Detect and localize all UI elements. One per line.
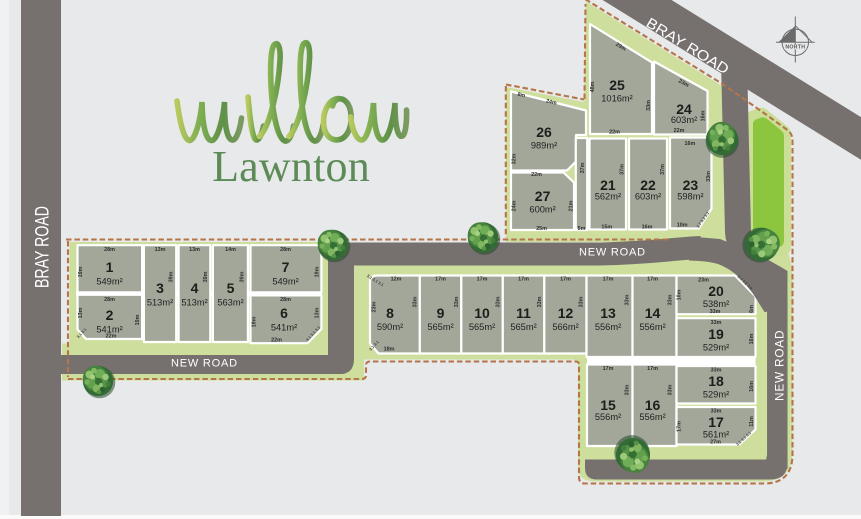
svg-text:48m: 48m bbox=[590, 81, 596, 92]
svg-text:18: 18 bbox=[708, 373, 724, 389]
svg-text:15: 15 bbox=[600, 397, 616, 413]
svg-text:13m: 13m bbox=[189, 247, 200, 253]
svg-text:590m²: 590m² bbox=[377, 322, 403, 332]
svg-text:549m²: 549m² bbox=[96, 277, 122, 287]
svg-text:BRAY ROAD: BRAY ROAD bbox=[33, 206, 54, 288]
svg-text:14m: 14m bbox=[225, 247, 236, 253]
svg-text:13m: 13m bbox=[78, 307, 84, 318]
svg-text:39m: 39m bbox=[203, 271, 209, 282]
svg-text:12: 12 bbox=[558, 305, 574, 321]
svg-text:32m: 32m bbox=[512, 153, 518, 164]
svg-text:556m²: 556m² bbox=[595, 412, 621, 422]
svg-text:11: 11 bbox=[516, 305, 531, 321]
svg-text:33m: 33m bbox=[668, 384, 674, 395]
svg-text:19: 19 bbox=[708, 326, 724, 342]
svg-text:33m: 33m bbox=[710, 309, 721, 315]
svg-text:603m²: 603m² bbox=[635, 192, 661, 202]
svg-text:27m: 27m bbox=[710, 440, 721, 446]
svg-text:17m: 17m bbox=[603, 366, 614, 372]
svg-text:11m: 11m bbox=[749, 416, 755, 427]
svg-text:Lawnton: Lawnton bbox=[212, 142, 370, 191]
svg-text:23m: 23m bbox=[698, 278, 709, 284]
svg-text:33m: 33m bbox=[711, 368, 722, 374]
svg-text:556m²: 556m² bbox=[595, 322, 621, 332]
svg-text:28m: 28m bbox=[280, 247, 291, 253]
svg-text:26: 26 bbox=[536, 124, 552, 140]
svg-text:33m: 33m bbox=[706, 171, 712, 182]
svg-text:37m: 37m bbox=[620, 164, 626, 175]
svg-text:3: 3 bbox=[156, 280, 164, 296]
svg-text:549m²: 549m² bbox=[272, 277, 298, 287]
svg-text:13: 13 bbox=[600, 305, 616, 321]
svg-text:19m: 19m bbox=[252, 316, 258, 327]
svg-text:19m: 19m bbox=[315, 266, 321, 277]
svg-text:2: 2 bbox=[106, 307, 114, 323]
svg-text:17m: 17m bbox=[677, 421, 683, 432]
svg-text:556m²: 556m² bbox=[639, 322, 665, 332]
svg-text:17m: 17m bbox=[435, 277, 446, 283]
svg-text:15m: 15m bbox=[601, 225, 612, 231]
svg-text:22m: 22m bbox=[531, 172, 542, 178]
svg-text:7: 7 bbox=[282, 259, 290, 275]
svg-text:NEW ROAD: NEW ROAD bbox=[579, 247, 646, 259]
svg-text:33m: 33m bbox=[668, 294, 674, 305]
svg-text:561m²: 561m² bbox=[703, 430, 729, 440]
svg-text:16: 16 bbox=[645, 397, 661, 413]
svg-text:22m: 22m bbox=[271, 338, 282, 344]
svg-text:39m: 39m bbox=[169, 271, 175, 282]
svg-text:39m: 39m bbox=[240, 271, 246, 282]
svg-text:603m²: 603m² bbox=[671, 115, 697, 125]
svg-text:24m: 24m bbox=[512, 200, 518, 211]
svg-text:529m²: 529m² bbox=[703, 343, 729, 353]
svg-text:33m: 33m bbox=[625, 294, 631, 305]
svg-text:17m: 17m bbox=[647, 366, 658, 372]
svg-text:NEW ROAD: NEW ROAD bbox=[773, 330, 787, 401]
svg-text:600m²: 600m² bbox=[529, 205, 555, 215]
svg-text:565m²: 565m² bbox=[510, 322, 536, 332]
svg-text:33m: 33m bbox=[537, 296, 543, 307]
svg-text:18m: 18m bbox=[384, 347, 395, 353]
svg-text:33m: 33m bbox=[625, 384, 631, 395]
svg-text:17m: 17m bbox=[647, 277, 658, 283]
svg-text:513m²: 513m² bbox=[181, 298, 207, 308]
svg-text:565m²: 565m² bbox=[427, 322, 453, 332]
svg-text:6: 6 bbox=[280, 305, 288, 321]
svg-text:538m²: 538m² bbox=[703, 299, 729, 309]
svg-text:563m²: 563m² bbox=[217, 298, 243, 308]
svg-text:16m: 16m bbox=[749, 381, 755, 392]
svg-text:17: 17 bbox=[708, 414, 724, 430]
svg-text:28m: 28m bbox=[280, 297, 291, 303]
svg-text:25: 25 bbox=[609, 77, 625, 93]
svg-text:37m: 37m bbox=[580, 162, 586, 173]
svg-text:28m: 28m bbox=[104, 247, 115, 253]
svg-text:14: 14 bbox=[645, 305, 661, 321]
svg-text:566m²: 566m² bbox=[552, 322, 578, 332]
svg-text:20: 20 bbox=[708, 283, 724, 299]
svg-text:22m: 22m bbox=[106, 334, 117, 340]
svg-text:1016m²: 1016m² bbox=[601, 94, 633, 104]
svg-text:17m: 17m bbox=[560, 277, 571, 283]
svg-text:13m: 13m bbox=[315, 307, 321, 318]
svg-text:23m: 23m bbox=[372, 301, 378, 312]
svg-text:19m: 19m bbox=[78, 266, 84, 277]
svg-text:19m: 19m bbox=[135, 314, 141, 325]
svg-text:33m: 33m bbox=[454, 296, 460, 307]
svg-text:16m: 16m bbox=[642, 225, 653, 231]
svg-text:17m: 17m bbox=[518, 277, 529, 283]
svg-text:4: 4 bbox=[191, 280, 199, 296]
svg-text:529m²: 529m² bbox=[703, 390, 729, 400]
svg-text:28m: 28m bbox=[104, 297, 115, 303]
svg-text:16m: 16m bbox=[685, 141, 696, 147]
svg-text:33m: 33m bbox=[711, 320, 722, 326]
svg-text:10: 10 bbox=[474, 305, 490, 321]
svg-text:33m: 33m bbox=[496, 296, 502, 307]
svg-text:1: 1 bbox=[106, 259, 114, 275]
svg-text:27: 27 bbox=[535, 188, 551, 204]
svg-text:33m: 33m bbox=[413, 296, 419, 307]
svg-text:541m²: 541m² bbox=[271, 323, 297, 333]
svg-text:21m: 21m bbox=[569, 200, 575, 211]
svg-text:37m: 37m bbox=[660, 164, 666, 175]
svg-text:NORTH: NORTH bbox=[785, 45, 805, 51]
svg-text:6m: 6m bbox=[749, 305, 755, 313]
svg-text:17m: 17m bbox=[603, 277, 614, 283]
svg-text:33m: 33m bbox=[646, 100, 652, 111]
svg-text:17m: 17m bbox=[477, 277, 488, 283]
svg-text:22m: 22m bbox=[674, 128, 685, 134]
svg-text:562m²: 562m² bbox=[595, 192, 621, 202]
svg-text:33m: 33m bbox=[711, 409, 722, 415]
svg-text:5m: 5m bbox=[578, 226, 586, 232]
svg-text:10m: 10m bbox=[677, 223, 688, 229]
svg-text:16m: 16m bbox=[701, 110, 707, 121]
svg-text:8: 8 bbox=[386, 305, 394, 321]
svg-text:33m: 33m bbox=[579, 296, 585, 307]
svg-text:12m: 12m bbox=[391, 277, 402, 283]
svg-text:565m²: 565m² bbox=[469, 322, 495, 332]
svg-text:22m: 22m bbox=[609, 130, 620, 136]
svg-text:13m: 13m bbox=[155, 247, 166, 253]
svg-text:989m²: 989m² bbox=[531, 141, 557, 151]
svg-text:5: 5 bbox=[227, 280, 235, 296]
svg-text:556m²: 556m² bbox=[639, 412, 665, 422]
svg-text:16m: 16m bbox=[749, 333, 755, 344]
svg-text:9: 9 bbox=[437, 305, 445, 321]
svg-text:513m²: 513m² bbox=[147, 298, 173, 308]
svg-text:10m: 10m bbox=[677, 289, 683, 300]
svg-text:NEW ROAD: NEW ROAD bbox=[171, 358, 238, 370]
svg-text:598m²: 598m² bbox=[677, 192, 703, 202]
svg-text:25m: 25m bbox=[536, 226, 547, 232]
